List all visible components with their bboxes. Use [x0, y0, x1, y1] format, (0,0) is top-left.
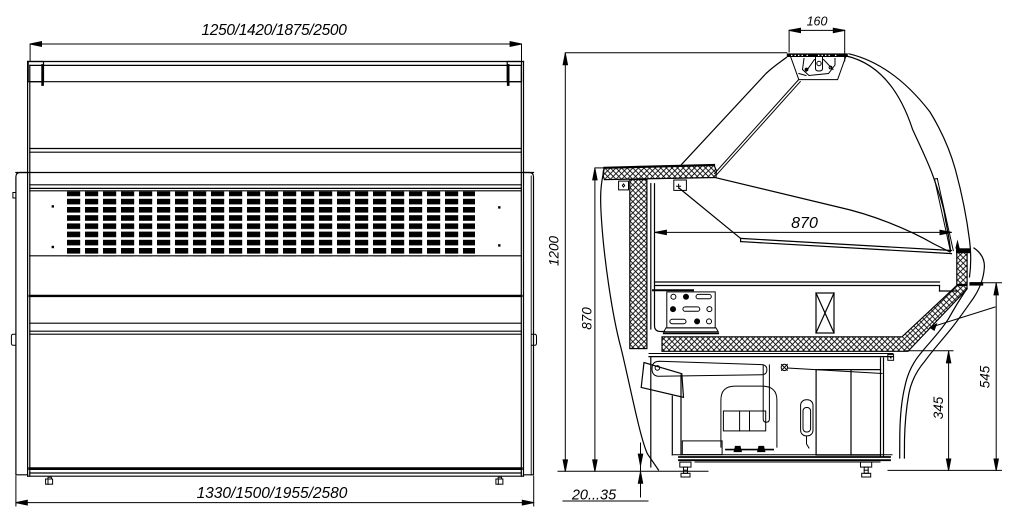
svg-text:870: 870 — [791, 215, 818, 232]
svg-text:160: 160 — [807, 15, 828, 29]
svg-text:20...35: 20...35 — [571, 488, 617, 504]
svg-text:345: 345 — [931, 396, 946, 419]
svg-text:870: 870 — [580, 307, 595, 330]
svg-text:1250/1420/1875/2500: 1250/1420/1875/2500 — [201, 22, 347, 39]
svg-text:1200: 1200 — [547, 235, 562, 266]
svg-text:1330/1500/1955/2580: 1330/1500/1955/2580 — [197, 485, 348, 502]
svg-text:545: 545 — [978, 365, 993, 388]
